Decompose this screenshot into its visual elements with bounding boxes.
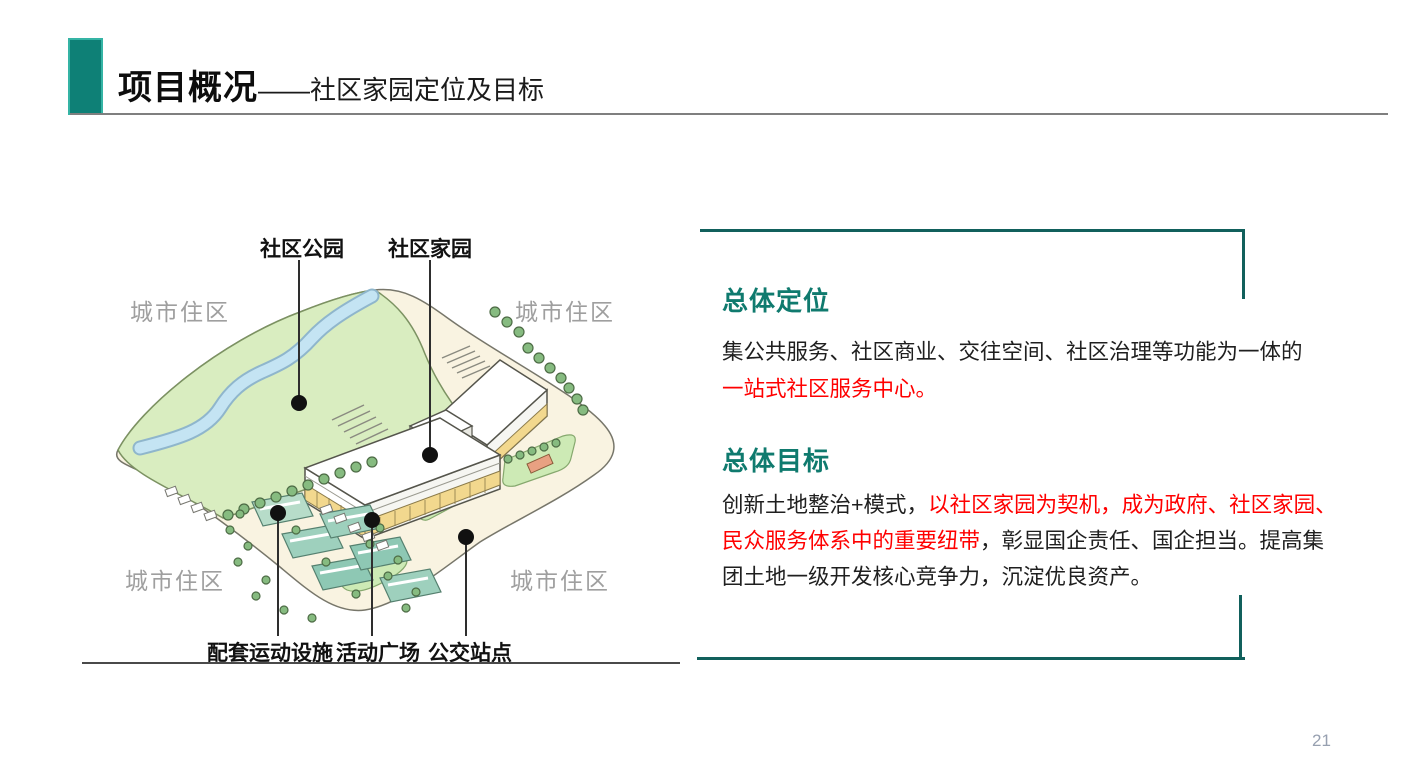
label-community-park: 社区公园 xyxy=(252,233,352,263)
diagram-baseline xyxy=(82,662,680,664)
panel-border-top-right xyxy=(1242,229,1245,299)
page-title-suffix: ——社区家园定位及目标 xyxy=(258,75,544,105)
para-goal-line1: 创新土地整治+模式，以社区家园为契机，成为政府、社区家园、 xyxy=(722,487,1342,523)
panel-border-bottom-right xyxy=(1239,595,1242,660)
label-urban-residential-tr: 城市住区 xyxy=(515,293,615,327)
label-urban-residential-tl: 城市住区 xyxy=(130,293,230,327)
slide: 项目概况——社区家园定位及目标 xyxy=(0,0,1423,778)
para-positioning-line2: 一站式社区服务中心。 xyxy=(722,371,1342,408)
panel-border-top xyxy=(700,229,1245,232)
para-positioning-line1: 集公共服务、社区商业、交往空间、社区治理等功能为一体的 xyxy=(722,334,1342,371)
site-plan-illustration xyxy=(80,212,700,667)
page-number: 21 xyxy=(1312,731,1331,751)
heading-overall-goal: 总体目标 xyxy=(722,441,830,478)
label-urban-residential-bl: 城市住区 xyxy=(125,562,225,596)
page-title: 项目概况——社区家园定位及目标 xyxy=(118,60,544,109)
label-community-home: 社区家园 xyxy=(380,233,480,263)
title-accent-bar xyxy=(68,38,103,115)
heading-overall-positioning: 总体定位 xyxy=(722,281,830,318)
para-overall-goal: 创新土地整治+模式，以社区家园为契机，成为政府、社区家园、 民众服务体系中的重要… xyxy=(722,487,1342,595)
para-goal-line3: 团土地一级开发核心竞争力，沉淀优良资产。 xyxy=(722,559,1342,595)
panel-border-bottom xyxy=(697,657,1245,660)
title-divider-line xyxy=(70,113,1388,115)
para-goal-line2: 民众服务体系中的重要纽带，彰显国企责任、国企担当。提高集 xyxy=(722,523,1342,559)
label-urban-residential-br: 城市住区 xyxy=(510,562,610,596)
para-overall-positioning: 集公共服务、社区商业、交往空间、社区治理等功能为一体的 一站式社区服务中心。 xyxy=(722,334,1342,408)
page-title-main: 项目概况 xyxy=(118,69,258,107)
